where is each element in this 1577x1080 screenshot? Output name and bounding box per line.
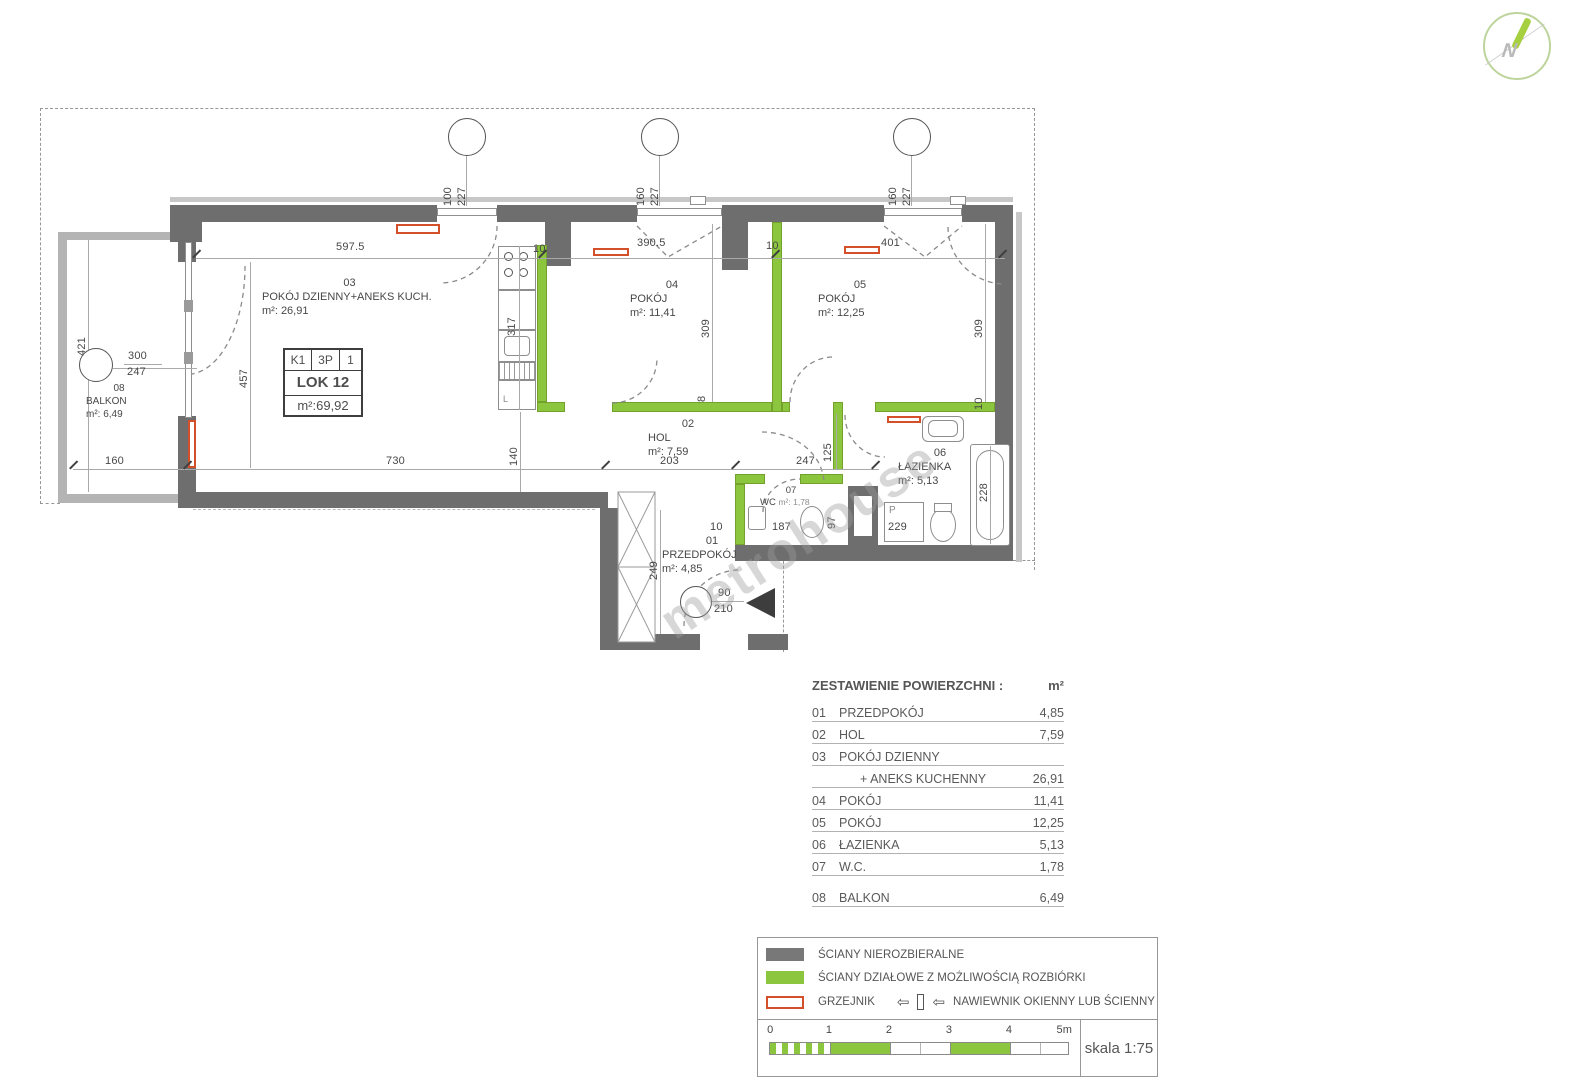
row-value: 5,13 [1040, 838, 1064, 852]
row-value: 12,25 [1033, 816, 1064, 830]
area-table-header: ZESTAWIENIE POWIERZCHNI : m² [812, 678, 1064, 693]
room-area-04: m²: 11,41 [630, 307, 676, 319]
dim-wc-10: 10 [710, 521, 723, 533]
dim-window2-h: 227 [649, 160, 661, 206]
row-value: 11,41 [1034, 794, 1064, 808]
room-area-hol: m²: 7,59 [648, 446, 688, 458]
dim-bath-w: 229 [888, 521, 907, 533]
dim-line-top [196, 258, 1005, 259]
area-table-unit: m² [1048, 678, 1064, 693]
dim-living-h: 457 [238, 344, 250, 388]
dim-partition-right: 10 [766, 240, 779, 252]
dim-window1-h: 227 [456, 160, 468, 206]
window1-circle [448, 118, 486, 156]
unit-area: m²:69,92 [285, 396, 361, 415]
room-name-05: POKÓJ [818, 293, 855, 305]
room-id-balcony: 08 [86, 383, 152, 396]
table-row: 01 PRZEDPOKÓJ 4,85 [812, 700, 1064, 722]
row-name: POKÓJ DZIENNY [839, 750, 1064, 764]
vent-label: NAWIEWNIK OKIENNY LUB ŚCIENNY [953, 996, 1155, 1008]
dim-vest-h: 249 [648, 546, 660, 580]
table-row: + ANEKS KUCHENNY 26,91 [812, 766, 1064, 788]
scale-tick-0: 0 [767, 1024, 773, 1036]
window3-circle [893, 118, 931, 156]
door-arc-window3 [948, 227, 1005, 284]
table-row: 02 HOL 7,59 [812, 722, 1064, 744]
legend-row-solid-walls: ŚCIANY NIEROZBIERALNE [766, 948, 964, 961]
unit-code-type: 3P [312, 350, 340, 370]
unit-code-num: 1 [340, 350, 361, 370]
scale-tick-1: 1 [826, 1024, 832, 1036]
unit-name: LOK 12 [285, 371, 361, 396]
table-row: 06 ŁAZIENKA 5,13 [812, 832, 1064, 854]
room-id-living: 03 [262, 276, 437, 290]
scale-ruler [769, 1042, 1069, 1055]
window2-circle [641, 118, 679, 156]
dim-140: 140 [508, 436, 520, 466]
row-name: PRZEDPOKÓJ [839, 706, 1040, 720]
dim-line-228 [990, 446, 991, 544]
dim-top-room04: 390.5 [637, 237, 666, 249]
dim-line-bottom [73, 469, 879, 470]
row-value: 4,85 [1040, 706, 1064, 720]
door-arc-window1 [440, 226, 497, 283]
dim-window2-w: 160 [635, 160, 647, 206]
room-label-04: 04 POKÓJ m²: 11,41 [630, 278, 714, 320]
scale-bar: 0 1 2 3 4 5m [769, 1024, 1069, 1070]
row-name: POKÓJ [839, 794, 1034, 808]
row-name: W.C. [839, 860, 1040, 874]
partition-wall-label: ŚCIANY DZIAŁOWE Z MOŻLIWOŚCIĄ ROZBIÓRKI [818, 972, 1086, 984]
row-no: 03 [812, 750, 839, 764]
room-id-04: 04 [630, 278, 714, 292]
room-name-living: POKÓJ DZIENNY+ANEKS KUCH. [262, 291, 432, 303]
row-name: POKÓJ [839, 816, 1033, 830]
area-table: ZESTAWIENIE POWIERZCHNI : m² 01 PRZEDPOK… [812, 678, 1064, 907]
row-value: 1,78 [1040, 860, 1064, 874]
vent-arrow-left-icon: ⇦ [932, 996, 945, 1009]
scale-seg-1-2 [830, 1043, 890, 1054]
table-row: 07 W.C. 1,78 [812, 854, 1064, 876]
room-area-living: m²: 26,91 [262, 305, 308, 317]
dim-balcony-w: 160 [105, 455, 124, 467]
row-no: 06 [812, 838, 839, 852]
unit-info-box: K1 3P 1 LOK 12 m²:69,92 [283, 348, 363, 417]
legend-row-partition-walls: ŚCIANY DZIAŁOWE Z MOŻLIWOŚCIĄ ROZBIÓRKI [766, 971, 1086, 984]
dim-partition-8: 8 [696, 386, 708, 402]
table-row: 04 POKÓJ 11,41 [812, 788, 1064, 810]
row-name: ŁAZIENKA [839, 838, 1040, 852]
room-label-balcony: 08 BALKON m²: 6,49 [86, 383, 152, 421]
dim-room05-h: 309 [973, 298, 985, 338]
door-arc-room05 [790, 357, 833, 402]
scale-seg-0-1 [770, 1043, 830, 1054]
dim-247: 247 [796, 455, 815, 467]
radiator-swatch [766, 996, 804, 1009]
door-arc-room04 [612, 358, 657, 403]
dim-line-125 [836, 414, 837, 470]
balcony-fraction-line [124, 364, 162, 365]
room-area-05: m²: 12,25 [818, 307, 864, 319]
dim-top-living: 597.5 [336, 241, 365, 253]
area-table-title: ZESTAWIENIE POWIERZCHNI : [812, 678, 1003, 693]
scale-tick-3: 3 [946, 1024, 952, 1036]
dim-window3-w: 160 [887, 160, 899, 206]
row-no: 02 [812, 728, 839, 742]
row-name: BALKON [839, 891, 1040, 905]
scale-halftick-25 [920, 1043, 921, 1054]
room-name-wc: WC [760, 497, 776, 508]
row-no: 07 [812, 860, 839, 874]
vent-rect-icon [917, 994, 924, 1010]
solid-wall-label: ŚCIANY NIEROZBIERALNE [818, 949, 964, 961]
scale-label-cell: skala 1:75 [1081, 1020, 1157, 1077]
dim-125: 125 [822, 432, 834, 462]
row-value: 7,59 [1040, 728, 1064, 742]
unit-code-row: K1 3P 1 [285, 350, 361, 371]
dim-balcony-door-w: 300 [128, 350, 147, 362]
row-no: 05 [812, 816, 839, 830]
dim-line-457 [250, 262, 251, 468]
vent-arrow-left-icon: ⇦ [897, 996, 910, 1009]
scale-halftick-45 [1040, 1043, 1041, 1054]
room-label-living: 03 POKÓJ DZIENNY+ANEKS KUCH. m²: 26,91 [262, 276, 437, 318]
dim-partition-left: 10 [533, 243, 546, 255]
row-no: 04 [812, 794, 839, 808]
radiator-label: GRZEJNIK [818, 996, 875, 1008]
row-value: 6,49 [1040, 891, 1064, 905]
dim-line-317 [519, 246, 520, 410]
room-name-balcony: BALKON [86, 396, 127, 407]
dim-balcony-h: 421 [76, 312, 88, 356]
room-id-hol: 02 [648, 417, 728, 431]
row-value: 26,91 [1033, 772, 1064, 786]
dim-line-309b [985, 224, 986, 402]
room-area-balcony: m²: 6,49 [86, 409, 123, 420]
legend-row-radiator-vent: GRZEJNIK ⇦ ⇦ NAWIEWNIK OKIENNY LUB ŚCIEN… [766, 994, 1155, 1010]
row-name: HOL [839, 728, 1040, 742]
legend: ŚCIANY NIEROZBIERALNE ŚCIANY DZIAŁOWE Z … [757, 937, 1158, 1077]
partition-wall-swatch [766, 971, 804, 984]
scale-tick-4: 4 [1006, 1024, 1012, 1036]
dim-balcony-door-h: 247 [127, 366, 146, 378]
room-label-05: 05 POKÓJ m²: 12,25 [818, 278, 902, 320]
dim-kitchen: 317 [506, 296, 518, 336]
dim-right-10: 10 [973, 390, 985, 410]
dim-window3-h: 227 [901, 160, 913, 206]
dim-window1-w: 100 [442, 160, 454, 206]
scale-seg-3-4 [950, 1043, 1010, 1054]
row-no: 01 [812, 706, 839, 720]
row-no: 08 [812, 891, 839, 905]
table-row: 03 POKÓJ DZIENNY [812, 744, 1064, 766]
scale-tick-5m: 5m [1056, 1024, 1072, 1036]
room-label-hol: 02 HOL m²: 7,59 [648, 417, 728, 459]
room-name-04: POKÓJ [630, 293, 667, 305]
scale-tick-2: 2 [886, 1024, 892, 1036]
balcony-door-stem [113, 368, 197, 369]
table-row: 05 POKÓJ 12,25 [812, 810, 1064, 832]
dim-line-140 [520, 412, 521, 492]
row-name: + ANEKS KUCHENNY [839, 772, 1033, 786]
room-id-05: 05 [818, 278, 902, 292]
dim-top-room05: 401 [881, 237, 900, 249]
scale-label: skala 1:75 [1085, 1040, 1153, 1057]
table-row: 08 BALKON 6,49 [812, 885, 1064, 907]
floor-plan: L P [0, 0, 1577, 670]
room-name-hol: HOL [648, 432, 671, 444]
solid-wall-swatch [766, 948, 804, 961]
dim-bottom-living: 730 [386, 455, 405, 467]
unit-code-k: K1 [285, 350, 312, 370]
